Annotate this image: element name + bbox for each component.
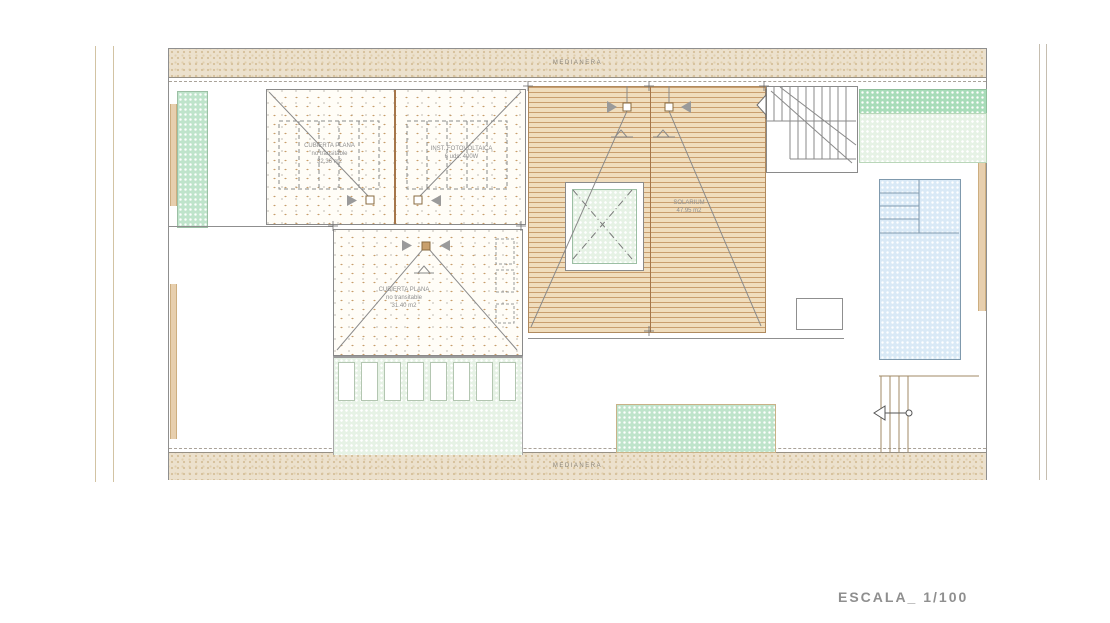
roof-drain-icon xyxy=(366,103,673,250)
dimension-tick xyxy=(328,81,769,336)
street-line-right-inner xyxy=(1039,44,1040,480)
floor-plan-sheet: MEDIANERA MEDIANERA CUBIERTA PLANA no tr… xyxy=(0,0,1110,623)
plan-linework xyxy=(169,49,986,479)
street-line-left-outer xyxy=(95,46,96,482)
plot-boundary: MEDIANERA MEDIANERA CUBIERTA PLANA no tr… xyxy=(168,48,987,480)
street-line-left-inner xyxy=(113,46,114,482)
scale-label: ESCALA_ 1/100 xyxy=(838,589,968,605)
slope-arrow-icon xyxy=(347,101,691,251)
stair-direction-arrow-icon xyxy=(757,89,912,420)
street-line-right-outer xyxy=(1046,44,1047,480)
